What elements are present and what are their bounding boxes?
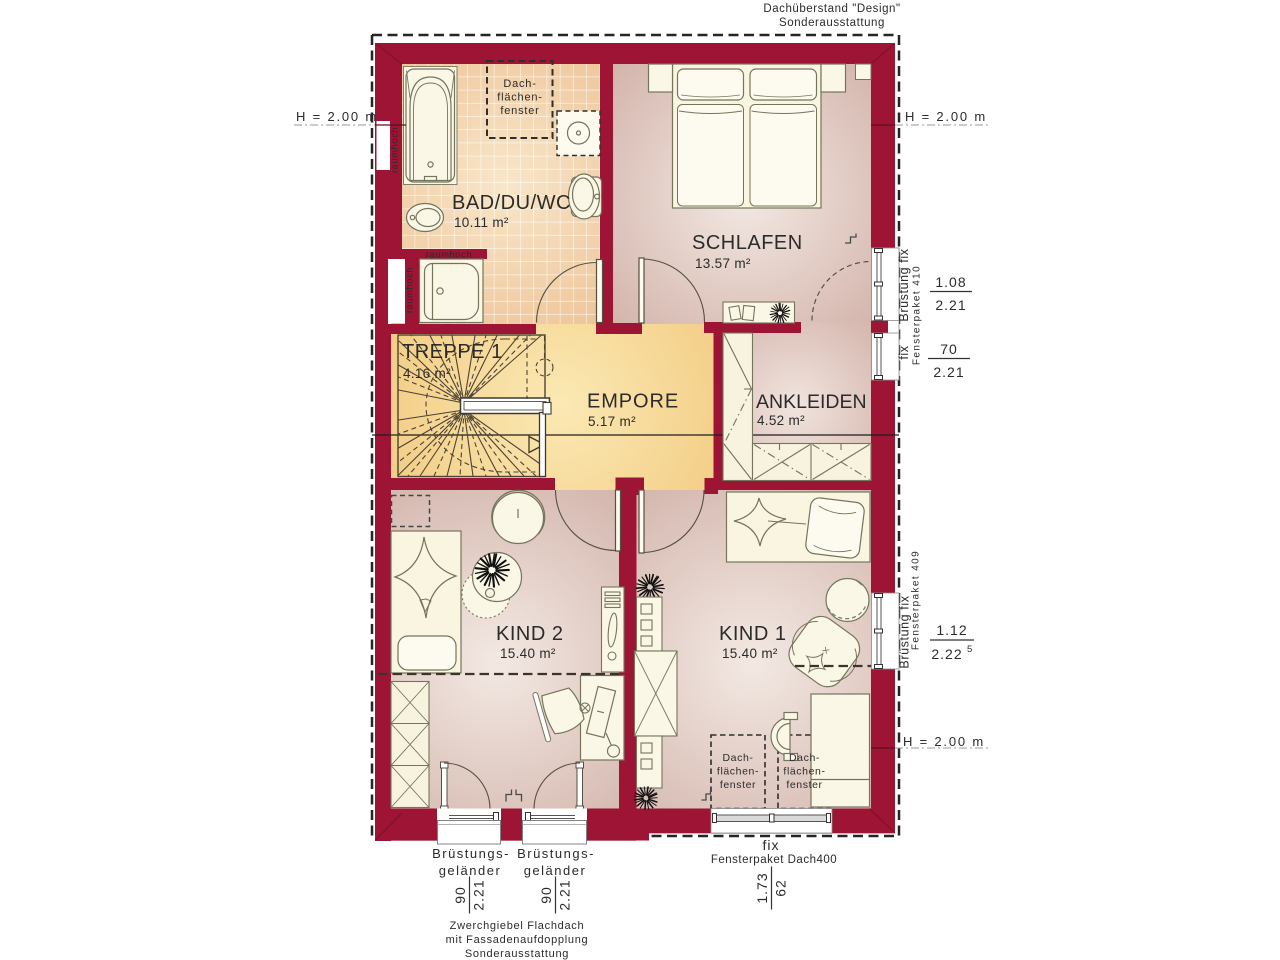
svg-text:2.21: 2.21 bbox=[935, 297, 966, 313]
svg-text:Brüstung fix: Brüstung fix bbox=[898, 595, 912, 668]
svg-text:Zwerchgiebel Flachdach: Zwerchgiebel Flachdach bbox=[450, 920, 585, 932]
svg-text:TREPPE 1: TREPPE 1 bbox=[402, 341, 503, 363]
svg-text:raumhoch: raumhoch bbox=[390, 127, 401, 173]
svg-text:SCHLAFEN: SCHLAFEN bbox=[692, 232, 803, 254]
svg-text:EMPORE: EMPORE bbox=[587, 391, 679, 413]
svg-text:1.73: 1.73 bbox=[754, 872, 770, 903]
svg-text:90: 90 bbox=[538, 886, 554, 904]
svg-text:BAD/DU/WC: BAD/DU/WC bbox=[452, 192, 571, 214]
svg-text:Dachüberstand "Design": Dachüberstand "Design" bbox=[763, 3, 900, 15]
svg-text:90: 90 bbox=[452, 886, 468, 904]
svg-text:Sonderausstattung: Sonderausstattung bbox=[465, 948, 569, 960]
svg-text:62: 62 bbox=[773, 879, 789, 897]
svg-text:H = 2.00 m: H = 2.00 m bbox=[296, 109, 378, 124]
svg-text:raumhoch: raumhoch bbox=[405, 267, 416, 313]
svg-text:Dach-: Dach- bbox=[722, 752, 753, 764]
svg-text:2.21: 2.21 bbox=[471, 879, 487, 910]
svg-text:4.52 m²: 4.52 m² bbox=[757, 413, 805, 428]
svg-text:flächen-: flächen- bbox=[497, 92, 543, 104]
svg-text:1.12: 1.12 bbox=[936, 622, 967, 638]
svg-text:flächen-: flächen- bbox=[783, 766, 825, 778]
svg-text:Brüstungs-: Brüstungs- bbox=[517, 846, 595, 861]
svg-text:1.08: 1.08 bbox=[935, 274, 966, 290]
svg-text:2.21: 2.21 bbox=[933, 364, 964, 380]
svg-text:geländer: geländer bbox=[524, 863, 587, 878]
svg-text:fenster: fenster bbox=[720, 779, 756, 791]
svg-text:2.21: 2.21 bbox=[557, 879, 573, 910]
svg-text:Fensterpaket 409: Fensterpaket 409 bbox=[911, 550, 922, 650]
svg-text:KIND 2: KIND 2 bbox=[496, 623, 563, 645]
svg-text:fenster: fenster bbox=[500, 105, 539, 117]
svg-text:fix: fix bbox=[763, 837, 780, 853]
svg-text:Sonderausstattung: Sonderausstattung bbox=[779, 17, 885, 29]
svg-text:H = 2.00 m: H = 2.00 m bbox=[905, 109, 987, 124]
svg-text:fenster: fenster bbox=[786, 779, 822, 791]
svg-text:Fensterpaket Dach400: Fensterpaket Dach400 bbox=[711, 854, 837, 866]
svg-text:Dach-: Dach- bbox=[789, 752, 820, 764]
svg-text:flächen-: flächen- bbox=[717, 766, 759, 778]
svg-text:70: 70 bbox=[940, 341, 958, 357]
svg-text:mit Fassadenaufdopplung: mit Fassadenaufdopplung bbox=[446, 934, 589, 946]
svg-text:13.57 m²: 13.57 m² bbox=[695, 256, 751, 271]
svg-text:2.22: 2.22 bbox=[931, 646, 962, 662]
svg-text:Dach-: Dach- bbox=[503, 78, 536, 90]
svg-text:Fensterpaket 410: Fensterpaket 410 bbox=[912, 265, 923, 365]
svg-text:H = 2.00 m: H = 2.00 m bbox=[903, 734, 985, 749]
svg-text:Brüstungs-: Brüstungs- bbox=[432, 846, 510, 861]
svg-text:ANKLEIDEN: ANKLEIDEN bbox=[756, 391, 867, 413]
svg-text:fix: fix bbox=[897, 345, 911, 359]
svg-text:5.17 m²: 5.17 m² bbox=[588, 414, 636, 429]
svg-text:raumhoch: raumhoch bbox=[426, 250, 472, 261]
svg-text:4.16 m²: 4.16 m² bbox=[403, 366, 451, 381]
svg-text:15.40 m²: 15.40 m² bbox=[722, 646, 778, 661]
svg-text:15.40 m²: 15.40 m² bbox=[500, 646, 556, 661]
svg-text:10.11 m²: 10.11 m² bbox=[454, 215, 509, 230]
svg-text:5: 5 bbox=[967, 644, 973, 655]
svg-text:KIND 1: KIND 1 bbox=[719, 623, 786, 645]
svg-text:Brüstung fix: Brüstung fix bbox=[897, 248, 911, 321]
svg-text:geländer: geländer bbox=[439, 863, 502, 878]
